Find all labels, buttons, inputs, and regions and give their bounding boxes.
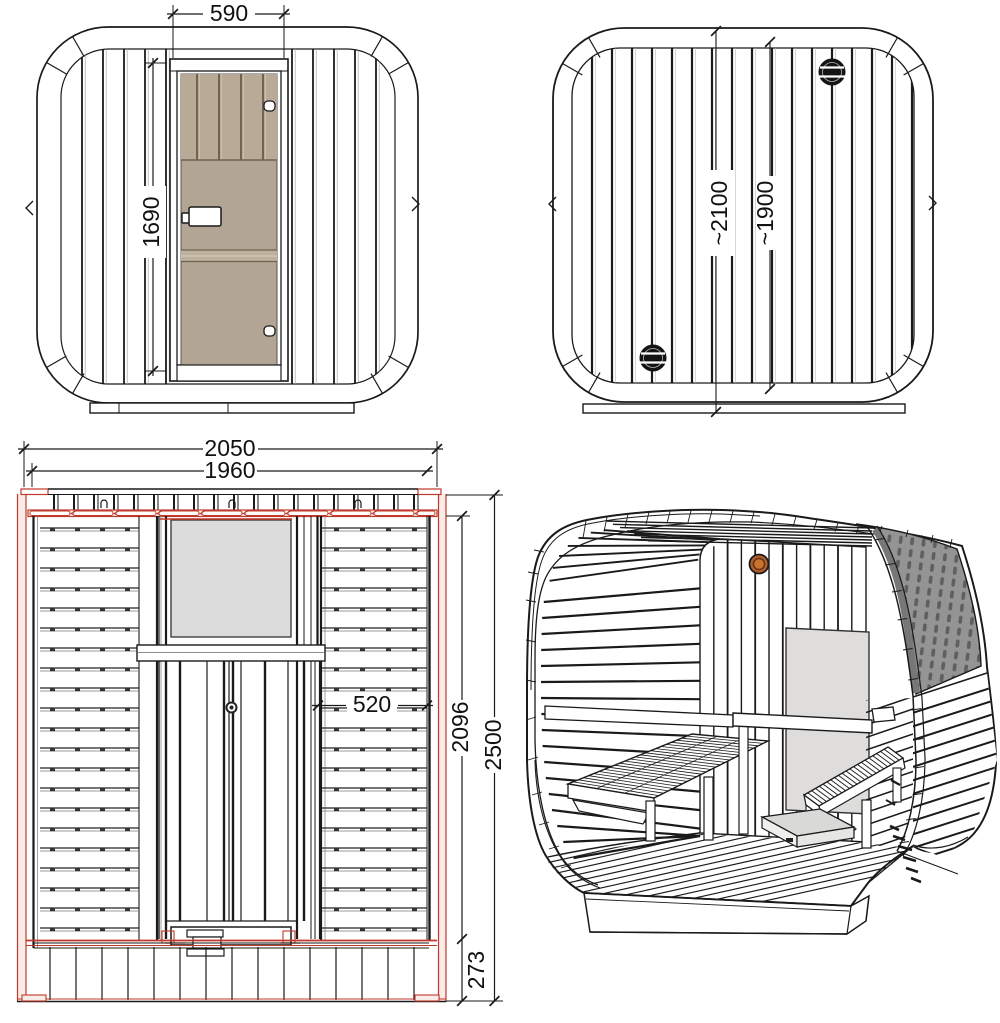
svg-text:2096: 2096 <box>447 701 473 752</box>
svg-text:~1900: ~1900 <box>752 181 778 246</box>
svg-text:~2100: ~2100 <box>706 181 732 246</box>
svg-text:2500: 2500 <box>480 719 506 770</box>
svg-text:520: 520 <box>353 691 391 717</box>
svg-text:1960: 1960 <box>204 457 255 483</box>
svg-text:273: 273 <box>463 951 489 989</box>
svg-text:1690: 1690 <box>138 196 164 247</box>
svg-text:590: 590 <box>210 0 248 26</box>
